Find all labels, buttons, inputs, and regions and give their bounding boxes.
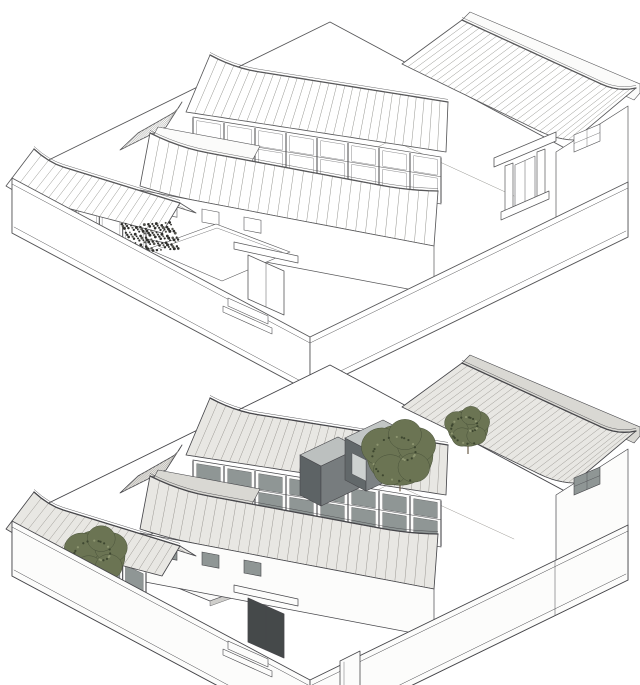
shrub-stipple-dot [158,236,160,238]
shrub-stipple-dot [176,245,178,247]
tree-ne-speckle [472,418,474,420]
tree-main-speckle [413,455,415,457]
shrub-stipple-dot [175,241,177,243]
shrub-stipple-dot [158,244,161,247]
tree-main-speckle [406,459,408,461]
shrub-stipple-dot [173,247,176,250]
shrub-stipple-dot [151,223,153,225]
shrub-stipple-dot [123,227,126,230]
shrub-stipple-dot [160,233,163,236]
shrub-stipple-dot [173,239,176,242]
tree-west-speckle [107,546,109,548]
shrub-stipple-dot [157,234,159,236]
shrub-stipple-dot [165,222,167,224]
shrub-stipple-dot [147,241,150,244]
tree-ne-speckle [462,442,464,444]
tree-main-speckle [414,446,416,448]
shrub-stipple-dot [157,242,159,244]
shrub-stipple-dot [125,232,127,234]
shrub-stipple-dot [162,244,164,246]
tree-ne-foliage [461,406,481,424]
shrub-stipple-dot [129,232,131,234]
tree-west-speckle [99,541,101,543]
tree-west-speckle [77,546,79,548]
shrub-stipple-dot [125,223,127,225]
tree-ne-speckle [469,417,471,419]
shrub-stipple-dot [166,243,169,246]
tree-west-speckle [98,558,100,560]
shrub-stipple-dot [126,234,128,236]
shrub-stipple-dot [161,242,163,244]
shrub-stipple-dot [150,238,152,240]
tree-ne-speckle [466,443,468,445]
shrub-stipple-dot [168,230,171,233]
shrub-stipple-dot [155,222,158,225]
tree-ne-speckle [473,442,475,444]
tree-main-speckle [372,463,374,465]
shrub-stipple-dot [165,231,167,233]
shrub-stipple-dot [162,235,164,237]
tree-ne-speckle [475,428,477,430]
shrub-stipple-dot [120,223,122,225]
shrub-stipple-dot [130,225,132,227]
shrub-stipple-dot [138,231,140,233]
shrub-stipple-dot [141,237,144,240]
tree-main-speckle [401,436,403,438]
shrub-stipple-dot [144,241,146,243]
tree-main-speckle [388,437,390,439]
shrub-stipple-dot [142,239,144,241]
tree-ne-speckle [475,420,477,422]
shrub-stipple-dot [157,225,159,227]
tree-west-speckle [103,542,105,544]
shrub-stipple-dot [168,221,171,224]
tree-west-speckle [108,556,110,558]
tree-west-speckle [86,540,88,542]
tree-ne-speckle [476,425,478,427]
tree-west-speckle [109,552,111,554]
axonometric-drawing-canvas [0,0,640,685]
tree-west-speckle [93,540,95,542]
shrub-stipple-dot [139,226,141,228]
tree-main-speckle [391,478,393,480]
shrub-stipple-dot [154,227,157,230]
tree-west-speckle [106,558,108,560]
tree-main-speckle [371,455,373,457]
tree-main-speckle [382,474,384,476]
shrub-stipple-dot [137,229,139,231]
tree-ne-speckle [457,418,459,420]
tree-main-speckle [377,470,379,472]
shrub-stipple-dot [138,239,140,241]
tree-main-speckle [398,480,400,482]
shrub-stipple-dot [169,248,171,250]
view-renovated-shaded [6,355,640,685]
tree-ne-speckle [460,417,462,419]
tree-main-speckle [376,444,378,446]
shrub-stipple-dot [160,249,162,251]
tree-ne-speckle [450,428,452,430]
shrub-stipple-dot [126,225,128,227]
shrub-stipple-dot [150,230,152,232]
tree-main-foliage [388,419,421,449]
shrub-stipple-dot [169,239,171,241]
shrub-stipple-dot [170,224,172,226]
shrub-stipple-dot [148,234,151,237]
tree-main-speckle [403,437,405,439]
shrub-stipple-dot [145,228,147,230]
shrub-stipple-dot [158,227,160,229]
shrub-stipple-dot [134,233,137,236]
tree-ne-speckle [453,421,455,423]
tree-west-speckle [102,559,104,561]
tree-west-speckle [82,542,84,544]
shrub-stipple-dot [149,243,151,245]
shrub-stipple-dot [127,227,129,229]
architectural-drawing-page [0,0,640,685]
shrub-stipple-dot [164,246,166,248]
shrub-stipple-dot [153,242,156,245]
tree-main-speckle [414,451,416,453]
tree-main-speckle [402,458,404,460]
shrub-stipple-dot [177,238,179,240]
tree-ne-speckle [465,416,467,418]
shrub-stipple-dot [136,235,138,237]
view-existing-wireframe [6,12,640,392]
tree-ne-speckle [453,435,455,437]
shrub-stipple-dot [151,232,153,234]
shrub-stipple-dot [156,240,158,242]
tree-main-speckle [411,457,413,459]
shrub-stipple-dot [152,249,155,252]
shrub-stipple-dot [154,236,157,239]
shrub-stipple-dot [156,232,158,234]
shrub-stipple-dot [133,238,135,240]
shrub-stipple-dot [132,236,134,238]
tree-ne-speckle [471,430,473,432]
shrub-stipple-dot [168,246,170,248]
shrub-stipple-dot [159,238,162,241]
shrub-stipple-dot [144,232,146,234]
tree-ne-speckle [469,429,471,431]
shrub-stipple-dot [131,227,133,229]
tree-main-speckle [375,468,377,470]
tree-main-speckle [407,439,409,441]
tree-main-speckle [373,448,375,450]
shrub-stipple-dot [176,236,178,238]
shrub-stipple-dot [174,232,177,235]
tree-west-speckle [109,548,111,550]
shrub-stipple-dot [142,230,145,233]
shrub-stipple-dot [177,247,180,250]
tree-west-speckle [97,540,99,542]
shrub-stipple-dot [159,229,161,231]
tree-west-speckle [74,550,76,552]
shrub-stipple-dot [171,228,173,230]
tree-ne-speckle [457,439,459,441]
shrub-stipple-dot [127,236,130,239]
shrub-stipple-dot [164,237,166,239]
tree-main-speckle [412,443,414,445]
shrub-stipple-dot [130,234,132,236]
tree-main-speckle [409,479,411,481]
shrub-stipple-dot [145,237,147,239]
tree-ne-speckle [476,422,478,424]
shrub-stipple-dot [164,229,166,231]
shrub-stipple-dot [133,229,135,231]
shrub-stipple-dot [148,225,151,228]
shrub-stipple-dot [137,237,139,239]
tree-ne-speckle [451,432,453,434]
tree-west-foliage [87,526,115,552]
tree-ne-speckle [451,423,453,425]
shrub-stipple-dot [153,225,155,227]
tree-main-speckle [396,436,398,438]
shrub-stipple-dot [143,223,146,226]
shrub-stipple-dot [162,226,165,229]
shrub-stipple-dot [156,249,158,251]
tree-main-speckle [383,439,385,441]
shrub-stipple-dot [167,237,170,240]
tree-main-speckle [372,450,374,452]
shrub-stipple-dot [135,226,138,229]
